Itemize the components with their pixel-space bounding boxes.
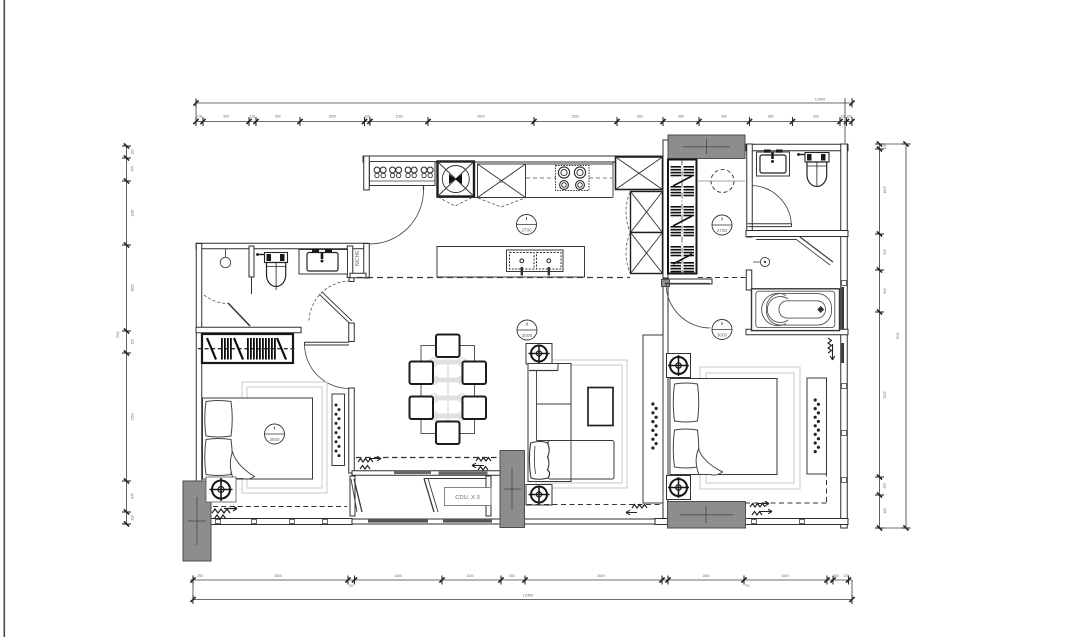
svg-text:12450: 12450 [523, 594, 534, 598]
svg-text:1100: 1100 [466, 574, 473, 578]
svg-text:7040: 7040 [896, 332, 900, 339]
svg-text:150: 150 [131, 339, 135, 345]
svg-text:100: 100 [250, 115, 256, 119]
svg-text:680: 680 [678, 115, 684, 119]
svg-text:M: M [499, 179, 503, 185]
svg-text:250: 250 [197, 574, 203, 578]
svg-text:1850: 1850 [328, 115, 336, 119]
svg-text:100: 100 [131, 149, 135, 155]
svg-text:1650: 1650 [571, 115, 579, 119]
svg-text:3000: 3000 [717, 333, 728, 338]
svg-text:160: 160 [883, 508, 887, 514]
svg-text:2850: 2850 [274, 574, 282, 578]
svg-text:1825: 1825 [131, 284, 135, 291]
svg-text:500: 500 [509, 574, 515, 578]
svg-text:2350: 2350 [131, 413, 135, 420]
svg-text:3245: 3245 [883, 391, 887, 398]
svg-text:100: 100 [131, 515, 135, 521]
svg-text:12400: 12400 [815, 98, 826, 102]
svg-text:1450: 1450 [394, 574, 402, 578]
svg-text:1500: 1500 [781, 574, 789, 578]
svg-text:180: 180 [349, 584, 354, 588]
svg-text:1625: 1625 [883, 186, 887, 193]
svg-text:860: 860 [768, 115, 774, 119]
svg-text:2700: 2700 [521, 228, 532, 233]
svg-text:2700: 2700 [717, 228, 728, 233]
svg-text:2600: 2600 [597, 574, 605, 578]
svg-text:1800: 1800 [702, 574, 710, 578]
svg-text:250: 250 [883, 483, 887, 489]
svg-text:100: 100 [364, 115, 370, 119]
svg-text:100: 100 [846, 115, 852, 119]
svg-text:4000: 4000 [477, 115, 485, 119]
svg-text:100: 100 [197, 115, 203, 119]
svg-text:900: 900 [223, 115, 229, 119]
svg-text:850: 850 [275, 115, 281, 119]
svg-text:250: 250 [833, 574, 839, 578]
svg-text:860: 860 [637, 115, 643, 119]
svg-text:845: 845 [131, 493, 135, 499]
svg-text:3000: 3000 [269, 437, 280, 442]
svg-text:900: 900 [813, 115, 819, 119]
svg-text:NICHE: NICHE [355, 250, 361, 266]
svg-text:810: 810 [883, 288, 887, 294]
svg-text:960: 960 [721, 115, 727, 119]
svg-text:1150: 1150 [395, 115, 402, 119]
svg-text:100: 100 [843, 574, 849, 578]
svg-text:625: 625 [883, 249, 887, 255]
svg-text:100: 100 [883, 144, 887, 150]
svg-text:455: 455 [131, 166, 135, 172]
svg-text:1150: 1150 [131, 209, 135, 216]
svg-text:760: 760 [745, 584, 750, 588]
svg-text:3000: 3000 [522, 333, 533, 338]
svg-text:CDU. X 3: CDU. X 3 [455, 495, 479, 501]
svg-text:7540: 7540 [116, 331, 120, 338]
